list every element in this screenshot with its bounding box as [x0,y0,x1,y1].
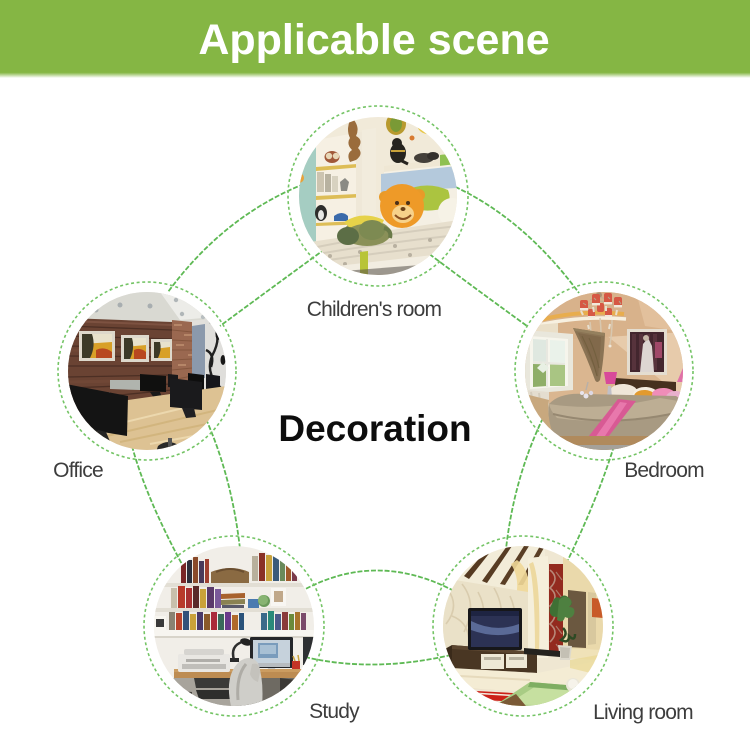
svg-text:Applicable scene: Applicable scene [198,16,549,64]
svg-text:Bedroom: Bedroom [624,459,704,482]
svg-text:Decoration: Decoration [278,408,471,449]
svg-text:Children's room: Children's room [307,298,442,321]
svg-text:Living room: Living room [593,701,693,724]
svg-text:Study: Study [309,700,360,723]
svg-text:Office: Office [53,459,103,482]
